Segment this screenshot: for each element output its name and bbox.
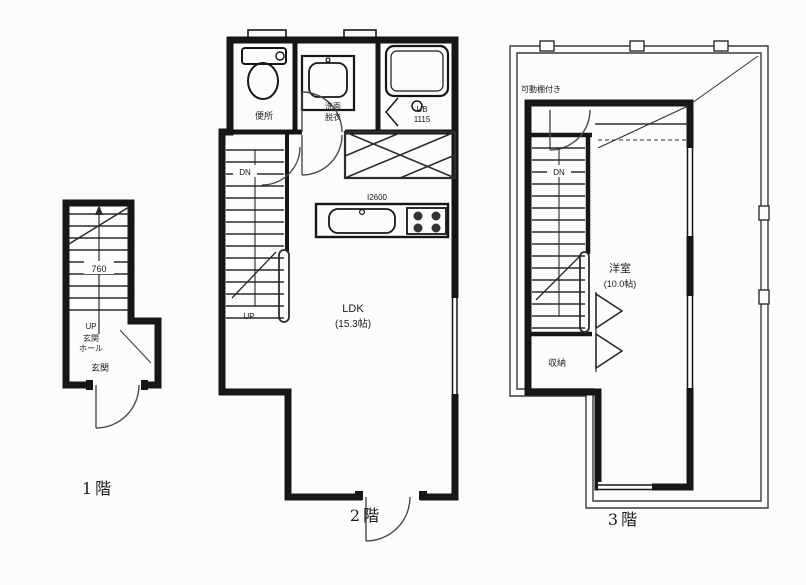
hatch-area (345, 132, 455, 178)
floor2-dn-label: DN (239, 168, 251, 177)
stove-icon (407, 208, 446, 234)
floor1-up-label: UP (85, 322, 96, 331)
floor3-shelf-note-label: 可動棚付き (521, 84, 561, 94)
ldk-door-arc (302, 135, 342, 175)
floor3-caption: 3階 (608, 510, 640, 529)
floor1-stair-width-label: 760 (91, 264, 106, 274)
floor1-door-gap (92, 379, 142, 391)
entry-door-arc (96, 385, 139, 428)
floorplan-page: 760 UP 玄関 ホール 玄関 1階 (0, 0, 806, 585)
floor2-wash-label-line1: 洗面 (325, 101, 341, 111)
floor3-entry-door-arc (550, 110, 590, 150)
floor2-wash-label-line2: 脱衣 (325, 112, 341, 122)
floor2-caption: 2階 (350, 506, 382, 525)
floor2-kitchen-size-label: I2600 (367, 193, 388, 202)
floor2-bath-label-line1: UB (416, 105, 427, 114)
pillar-marker (759, 206, 769, 220)
floor2-door-jamb (355, 491, 363, 500)
floor1-entry-label: 玄関 (91, 362, 109, 373)
toilet-icon (242, 48, 286, 99)
floor2-door-jamb (419, 491, 427, 500)
stair-handrail (279, 250, 289, 322)
pillar-marker (540, 41, 554, 51)
floor3-room-label-line1: 洋室 (609, 261, 631, 275)
floor2-up-label: UP (243, 312, 254, 321)
closet-door-triangles (596, 292, 622, 372)
floor1-door-jamb (86, 380, 93, 390)
floor2-window-right (450, 298, 459, 394)
pillar-marker (714, 41, 728, 51)
pillar-marker (630, 41, 644, 51)
floor3-room-label-line2: (10.0帖) (604, 278, 637, 289)
floor1-caption: 1階 (82, 479, 114, 498)
kitchen-counter (316, 204, 448, 237)
floor2-room-label-line2: (15.3帖) (335, 317, 371, 330)
floor3-window-bottom (598, 482, 652, 493)
floor1-hall-label-line1: 玄関 (83, 333, 99, 343)
floor3-closet-label: 収納 (548, 357, 566, 368)
folding-door-icon (386, 98, 398, 126)
floor2-bath-label-line2: 1115 (414, 115, 431, 124)
floor2-door-gap (362, 489, 420, 502)
pillar-marker (759, 290, 769, 304)
floor2-room-label-line1: LDK (342, 303, 364, 315)
stairhall-door-arc (262, 147, 300, 185)
floor1-door-jamb (141, 380, 148, 390)
genkan-door-line (120, 330, 151, 363)
floor3-plan (510, 41, 769, 508)
balcony-boundary (510, 46, 768, 508)
floor1-walls (66, 203, 158, 385)
washroom-door-arc (302, 92, 342, 132)
floor1-plan (66, 203, 158, 428)
kitchen-sink-icon (329, 209, 395, 233)
floor2-toilet-label: 便所 (255, 110, 273, 121)
floorplan-canvas: 760 UP 玄関 ホール 玄関 1階 (0, 0, 806, 585)
floor3-dn-label: DN (553, 168, 565, 177)
bathtub-icon (386, 46, 448, 126)
floor1-hall-label-line2: ホール (79, 344, 103, 353)
